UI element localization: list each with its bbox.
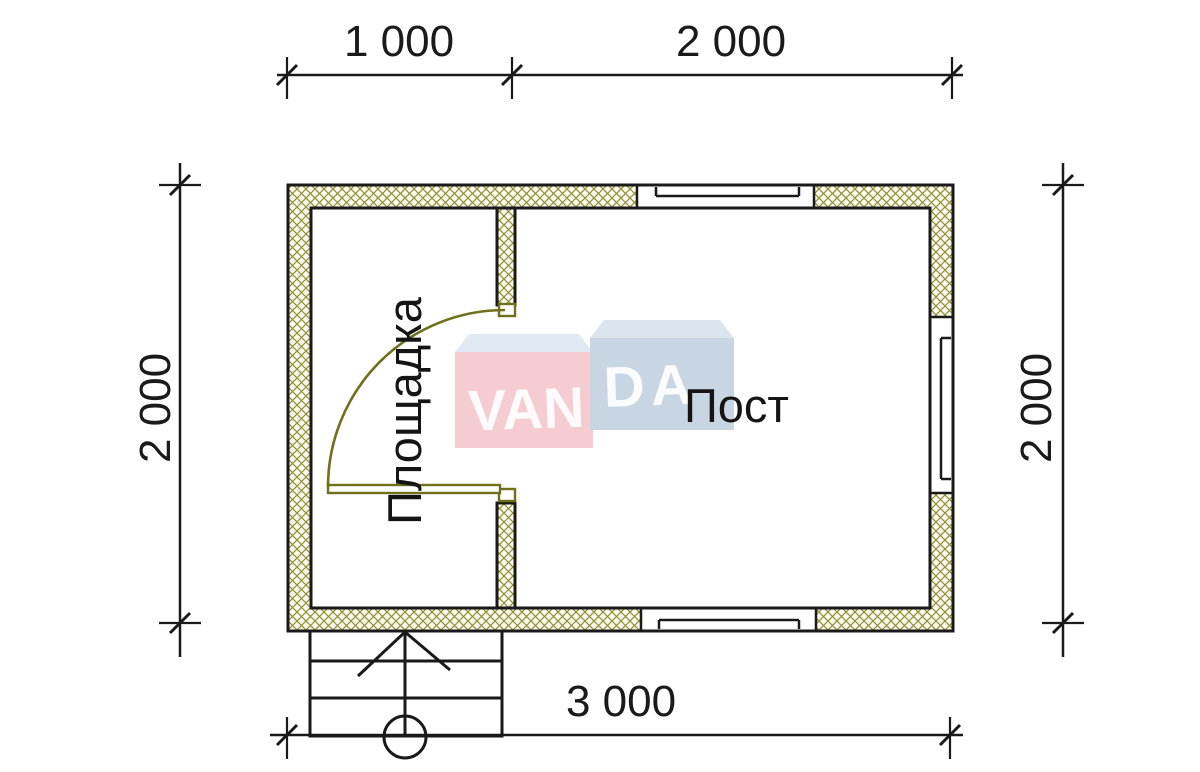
partition-upper — [497, 209, 515, 305]
partition-lower — [497, 503, 515, 608]
wall-bottom — [288, 608, 953, 631]
dimension-top-label-2: 2 000 — [676, 17, 786, 66]
logo-pink-cube-top — [455, 334, 593, 352]
room-label-vestibule: Площадка — [378, 296, 431, 525]
dimension-bottom: 3 000 — [270, 677, 963, 759]
door-jamb-bottom — [499, 489, 515, 501]
dimension-left: 2 000 — [131, 163, 201, 657]
dimension-bottom-label: 3 000 — [566, 677, 676, 726]
logo-text-van: VAN — [467, 376, 585, 444]
dimension-right-label: 2 000 — [1012, 353, 1061, 463]
floor-plan-page: VAN DA 1 000 2 — [0, 0, 1200, 772]
room-label-post: Пост — [684, 379, 789, 432]
dimension-top: 1 000 2 000 — [277, 17, 963, 99]
wall-top — [288, 185, 953, 208]
floor-plan-drawing: VAN DA 1 000 2 — [0, 0, 1200, 772]
dimension-top-label-1: 1 000 — [344, 17, 454, 66]
dimension-right: 2 000 — [1012, 163, 1084, 657]
wall-left — [288, 208, 311, 608]
dimension-left-label: 2 000 — [131, 353, 180, 463]
logo-blue-cube-top — [590, 320, 734, 338]
stairs — [310, 631, 502, 758]
stair-direction-arrow — [358, 632, 450, 736]
